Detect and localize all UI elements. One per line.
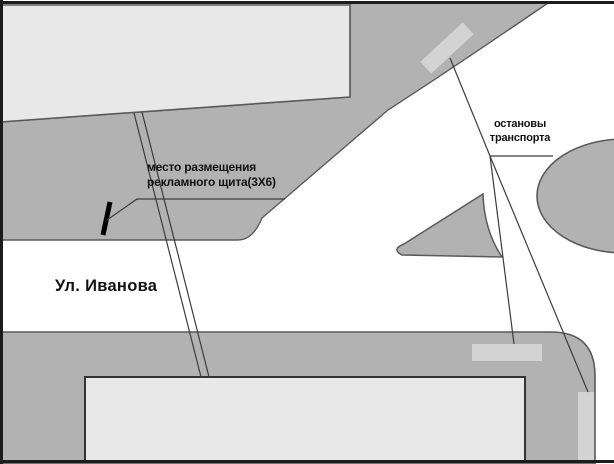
building-bottom [85, 377, 525, 461]
transport-stops-label-line1: остановы [484, 117, 556, 131]
street-name-label: Ул. Иванова [55, 276, 157, 296]
billboard-label: место размещения рекламного щита(3Х6) [147, 160, 276, 190]
transport-stops-label-line2: транспорта [484, 131, 556, 145]
billboard-label-line1: место размещения [147, 160, 276, 175]
transport-stops-label: остановы транспорта [484, 117, 556, 145]
bus-stop-pad-right [578, 392, 594, 462]
billboard-label-line2: рекламного щита(3Х6) [147, 175, 276, 190]
traffic-island [397, 194, 502, 257]
map-canvas [0, 0, 614, 464]
bus-stop-pad-bottom [472, 344, 542, 361]
site-plan-map: место размещения рекламного щита(3Х6) Ул… [0, 0, 614, 464]
